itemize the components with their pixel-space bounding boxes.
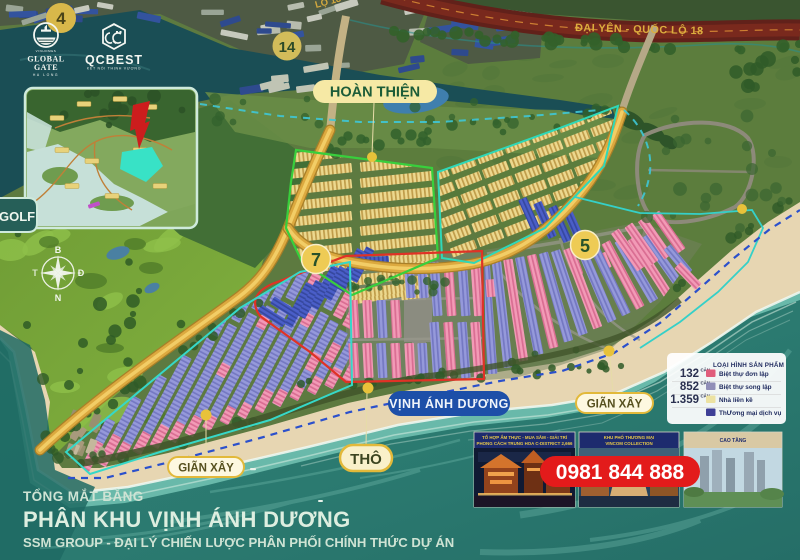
svg-text:SSM GROUP - ĐẠI LÝ CHIẾN LƯỢC: SSM GROUP - ĐẠI LÝ CHIẾN LƯỢC PHÂN PHỐI … <box>23 535 454 550</box>
svg-text:1.359: 1.359 <box>670 394 699 406</box>
svg-text:N: N <box>55 293 62 303</box>
svg-text:Nhà liền kề: Nhà liền kề <box>719 395 753 404</box>
svg-text:GIÃN XÂY: GIÃN XÂY <box>178 462 234 475</box>
svg-text:Biệt thự song lập: Biệt thự song lập <box>719 384 772 391</box>
svg-text:Đ: Đ <box>78 268 85 278</box>
svg-text:QCBEST: QCBEST <box>85 53 143 67</box>
svg-text:B: B <box>55 245 62 255</box>
svg-text:CAO TẦNG: CAO TẦNG <box>720 437 747 444</box>
svg-text:VINHOMES: VINHOMES <box>36 49 57 53</box>
svg-text:852: 852 <box>680 381 699 393</box>
svg-text:KHU PHỐ THƯƠNG MẠI: KHU PHỐ THƯƠNG MẠI <box>604 435 655 440</box>
svg-text:PHÂN KHU VỊNH ÁNH DƯƠNG: PHÂN KHU VỊNH ÁNH DƯƠNG <box>23 507 350 532</box>
svg-text:VỊNH ÁNH DƯƠNG: VỊNH ÁNH DƯƠNG <box>389 396 509 411</box>
svg-text:KẾT NỐI THỊNH VƯỢNG: KẾT NỐI THỊNH VƯỢNG <box>87 66 141 71</box>
svg-text:PHONG CÁCH TRUNG HOA C-DISTRIC: PHONG CÁCH TRUNG HOA C-DISTRICT 2,666 <box>477 441 574 446</box>
svg-text:Biệt thự đơn lập: Biệt thự đơn lập <box>719 371 769 378</box>
svg-text:7: 7 <box>311 250 321 270</box>
svg-text:5: 5 <box>580 236 590 256</box>
svg-text:ThƯơng mại dịch vụ: ThƯơng mại dịch vụ <box>719 410 781 417</box>
svg-text:4: 4 <box>56 9 66 28</box>
svg-text:HA LONG: HA LONG <box>33 73 59 77</box>
svg-text:T: T <box>32 268 38 278</box>
svg-text:GIÃN XÂY: GIÃN XÂY <box>587 398 643 411</box>
svg-text:HOÀN THIỆN: HOÀN THIỆN <box>330 83 420 101</box>
svg-text:THÔ: THÔ <box>350 450 382 468</box>
svg-text:14: 14 <box>279 39 296 56</box>
svg-text:0981 844 888: 0981 844 888 <box>556 461 685 484</box>
svg-text:132: 132 <box>680 368 699 380</box>
svg-text:TỔNG MẮT BẰNG: TỔNG MẮT BẰNG <box>23 489 144 504</box>
svg-text:LOẠI HÌNH SẢN PHẨM: LOẠI HÌNH SẢN PHẨM <box>713 360 784 369</box>
svg-text:GATE: GATE <box>34 63 58 72</box>
svg-text:VINCOM COLLECTION: VINCOM COLLECTION <box>605 441 652 446</box>
svg-text:TỔ HỢP ẨM THỰC - MUA SẮM - GIẢ: TỔ HỢP ẨM THỰC - MUA SẮM - GIẢI TRÍ <box>482 435 568 440</box>
svg-text:GOLF: GOLF <box>0 209 35 224</box>
